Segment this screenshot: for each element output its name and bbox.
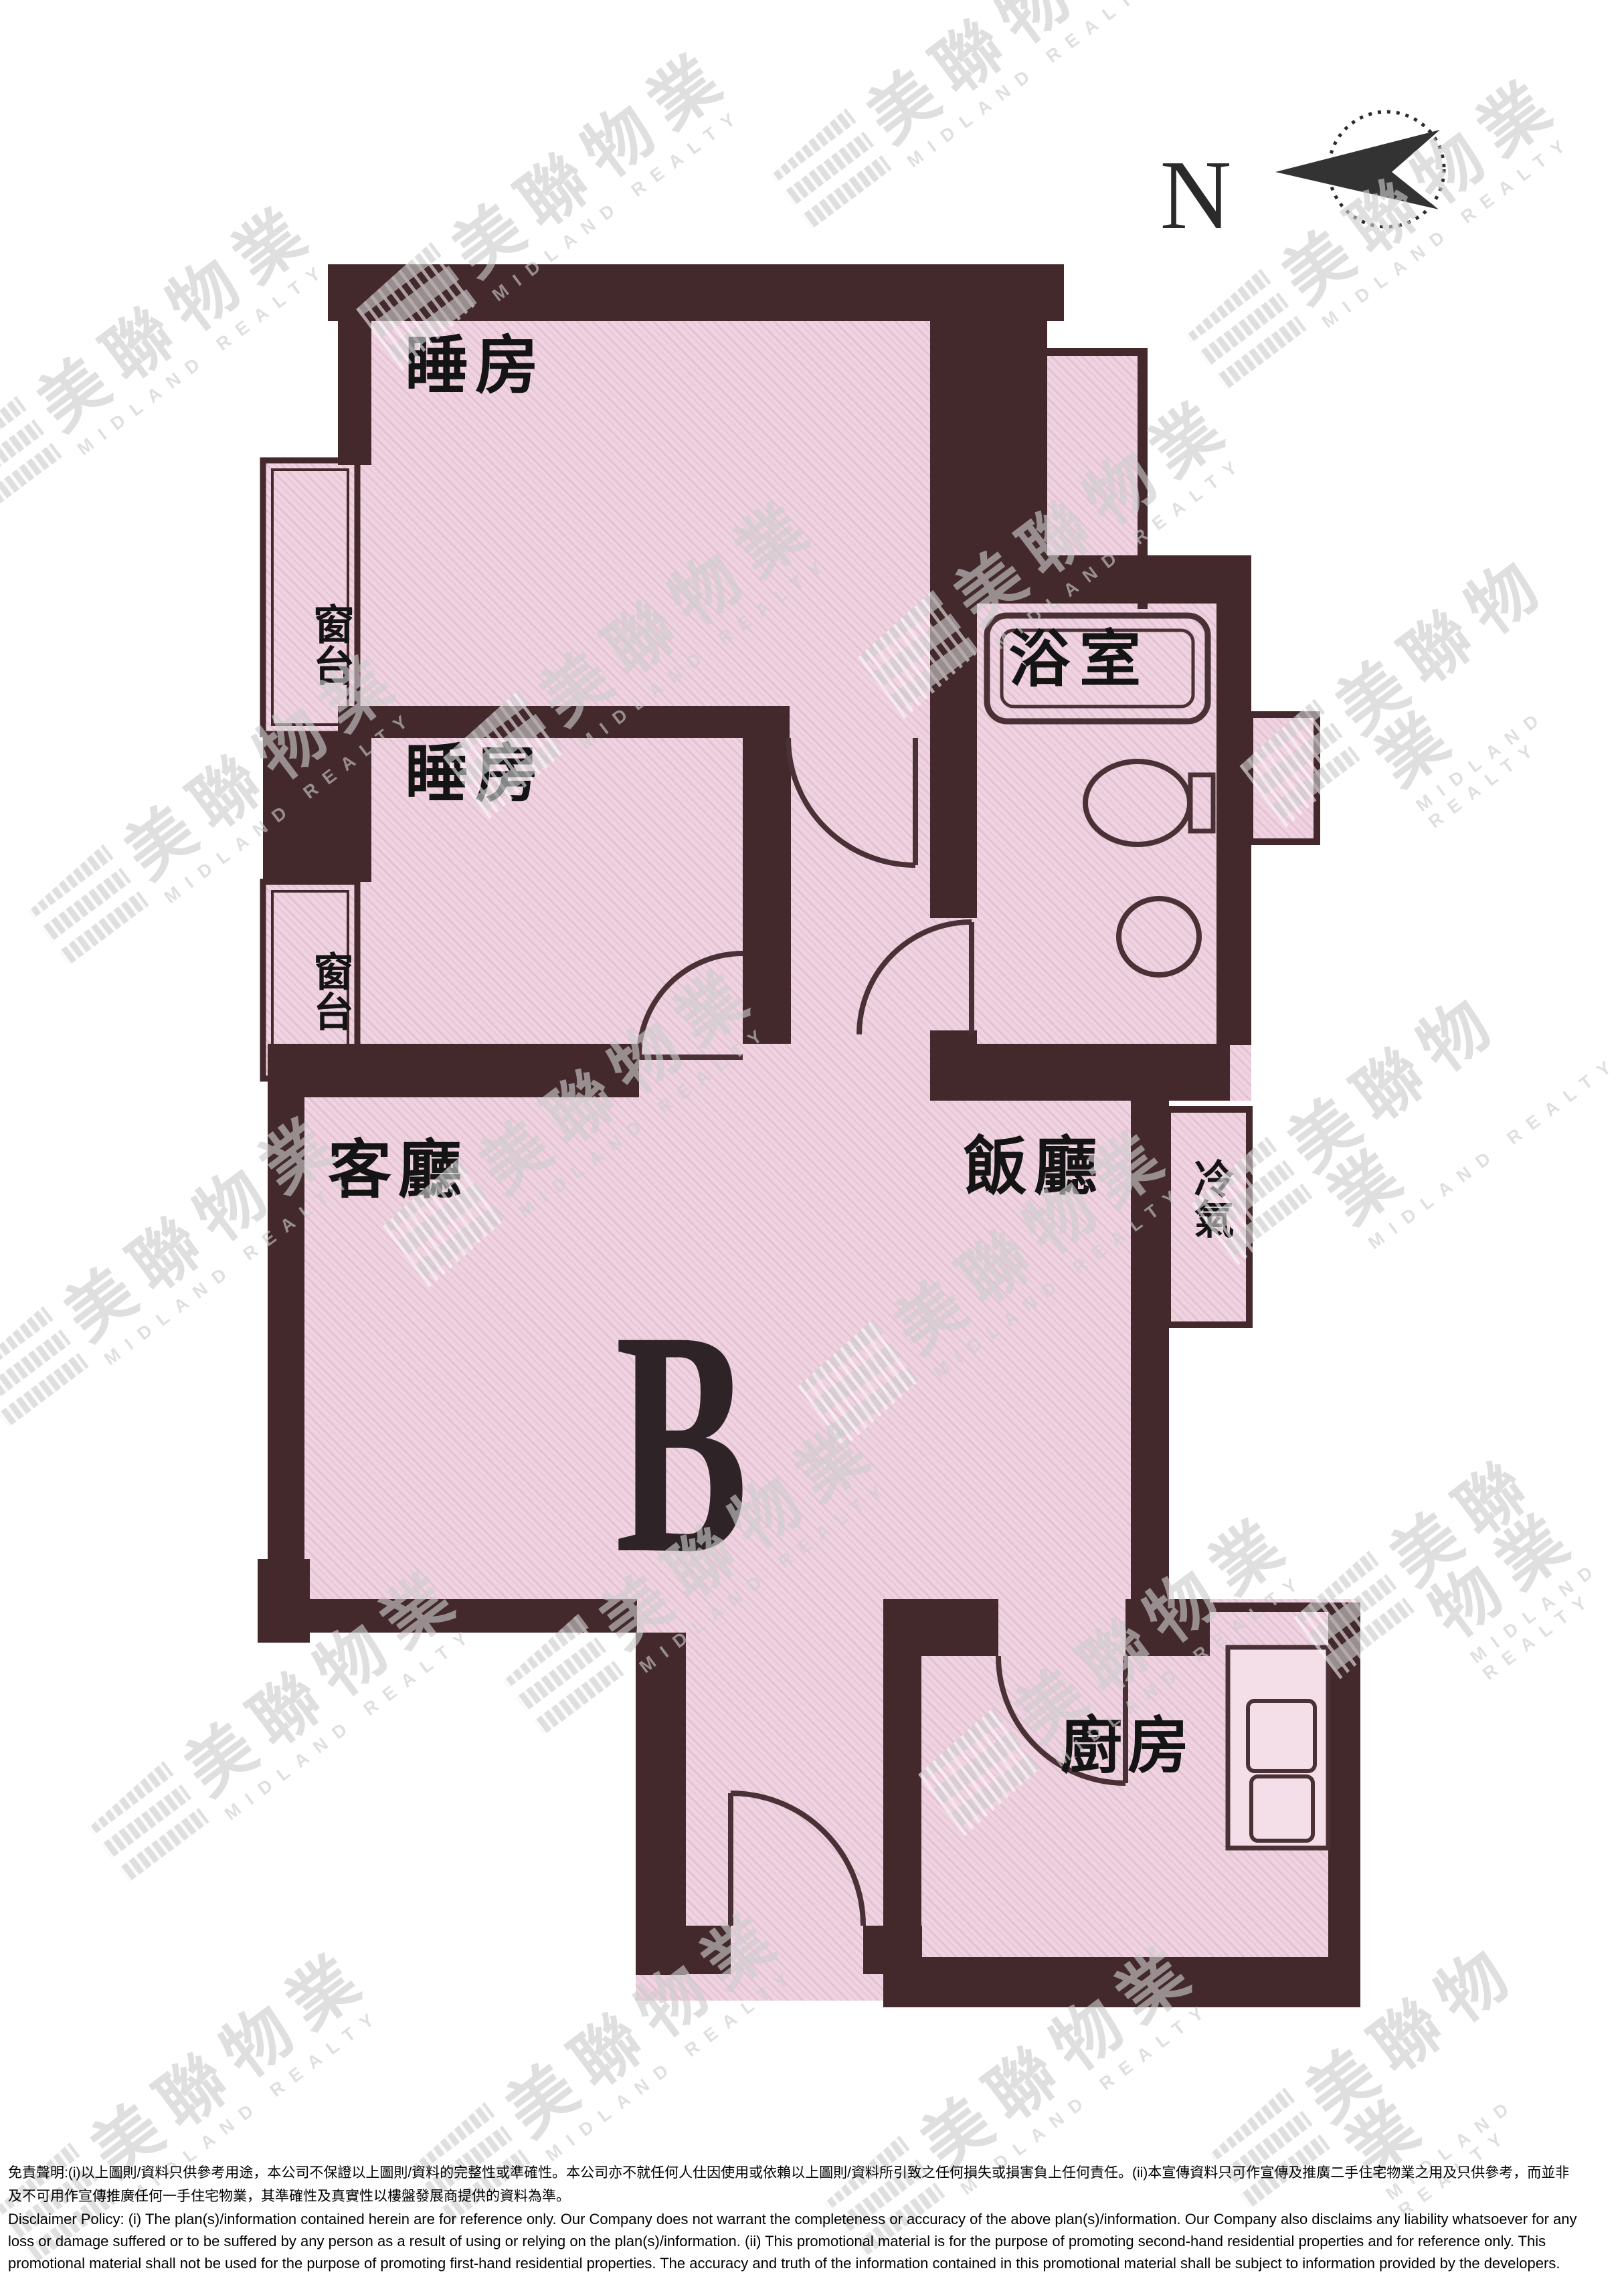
disclaimer-en-line2: loss or damage suffered or to be suffere… bbox=[8, 2230, 1616, 2252]
room-label-bathroom: 浴室 bbox=[969, 628, 1190, 693]
disclaimer-zh-line2: 及不可用作宣傳推廣任何一手住宅物業，其準確性及真實性以樓盤發展商提供的資料為準。 bbox=[8, 2185, 1616, 2208]
room-label-kitchen: 廚房 bbox=[1024, 1714, 1231, 1779]
room-label-bay-window-2: 窗台 bbox=[301, 907, 352, 1075]
disclaimer-zh-line1: 免責聲明:(i)以上圖則/資料只供參考用途，本公司不保證以上圖則/資料的完整性或… bbox=[8, 2161, 1616, 2185]
unit-label: B bbox=[615, 1317, 723, 1567]
room-label-dining-room: 飯廳 bbox=[930, 1134, 1138, 1201]
room-label-bedroom-1: 睡房 bbox=[365, 333, 585, 400]
room-label-bedroom-2: 睡房 bbox=[365, 741, 585, 808]
north-arrow-icon bbox=[1275, 130, 1440, 209]
disclaimer-en-line3: promotional material shall not be used f… bbox=[8, 2252, 1616, 2274]
disclaimer-block: 免責聲明:(i)以上圖則/資料只供參考用途，本公司不保證以上圖則/資料的完整性或… bbox=[8, 2161, 1616, 2274]
room-label-living-room: 客廳 bbox=[294, 1137, 502, 1204]
compass-north-label: N bbox=[1146, 144, 1246, 248]
disclaimer-en-line1: Disclaimer Policy: (i) The plan(s)/infor… bbox=[8, 2208, 1616, 2230]
floor-plan-page: N 睡房 窗台 睡房 窗台 浴室 客廳 飯廳 冷氣 廚房 B 美聯物業MIDLA… bbox=[0, 0, 1624, 2293]
compass bbox=[1275, 112, 1444, 227]
room-label-ac-platform: 冷氣 bbox=[1182, 1115, 1233, 1282]
duct-box bbox=[1250, 715, 1317, 842]
floor-plan-drawing bbox=[0, 0, 1624, 2293]
room-label-bay-window-1: 窗台 bbox=[301, 554, 352, 735]
